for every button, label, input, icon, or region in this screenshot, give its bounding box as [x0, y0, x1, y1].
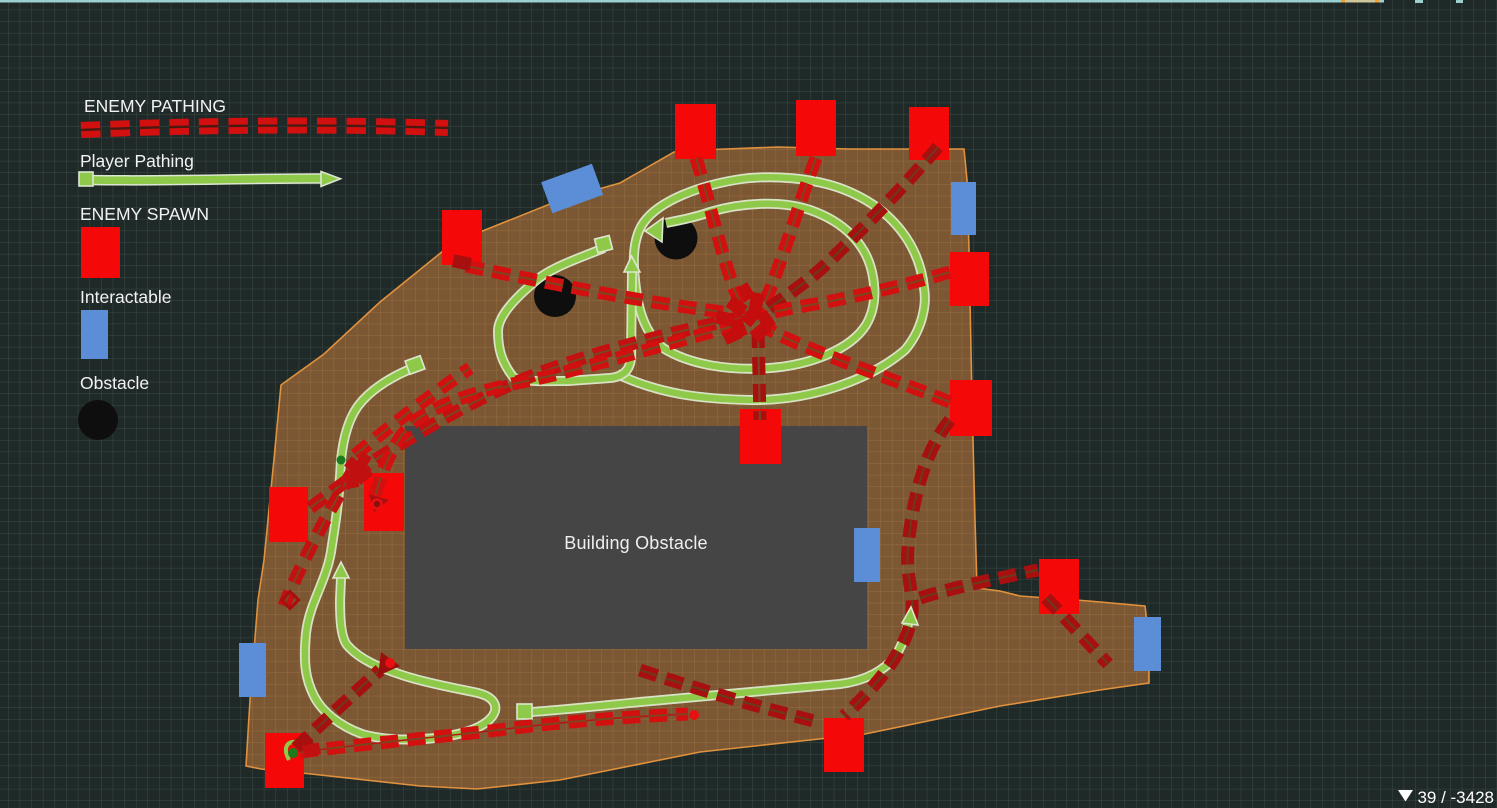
svg-text:Building Obstacle: Building Obstacle	[564, 533, 707, 553]
svg-text:Obstacle: Obstacle	[80, 373, 149, 393]
svg-text:39 / -3428: 39 / -3428	[1417, 788, 1494, 807]
svg-text:ENEMY SPAWN: ENEMY SPAWN	[80, 204, 209, 224]
svg-text:Player Pathing: Player Pathing	[80, 151, 194, 171]
svg-text:Interactable: Interactable	[80, 287, 171, 307]
svg-text:ENEMY PATHING: ENEMY PATHING	[84, 96, 226, 116]
